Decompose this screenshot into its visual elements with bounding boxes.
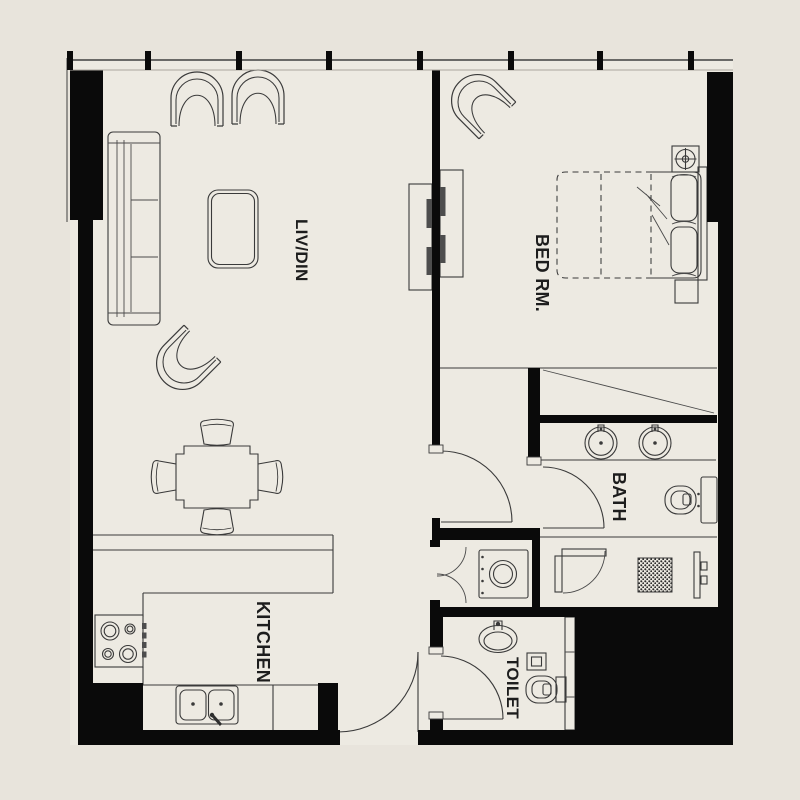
dining-table: [176, 446, 258, 508]
wall-right: [718, 222, 733, 737]
pillow: [671, 175, 697, 221]
wall-entry-block: [318, 683, 338, 745]
room-label-living-dining: LIV/DIN: [292, 219, 311, 282]
sofa: [108, 132, 160, 325]
wall-toilet-left-lower: [430, 718, 443, 730]
wall-corridor: [432, 528, 540, 540]
wall-kitchen-corner: [93, 683, 143, 730]
room-label-kitchen: KITCHEN: [253, 601, 273, 683]
dining-chair: [201, 509, 234, 535]
floor-drain: [638, 558, 672, 592]
pillow: [671, 227, 697, 273]
dining-chair: [201, 419, 234, 445]
wall-closet-right: [532, 540, 540, 607]
wall-living-bedroom-divider: [432, 70, 440, 448]
kitchen-sink: [176, 686, 238, 725]
wall-wardrobe-back: [540, 415, 717, 423]
stove-hob: [95, 615, 147, 667]
wall-right-pier: [707, 72, 733, 222]
room-label-bath: BATH: [609, 472, 629, 522]
room-label-toilet: TOILET: [503, 657, 522, 719]
wall-closet-toilet: [430, 607, 575, 617]
wall-se-mass: [575, 607, 733, 745]
dining-chair: [257, 461, 283, 494]
wall-bottom-left: [78, 730, 340, 745]
armchair: [171, 72, 223, 126]
room-label-bedroom: BED RM.: [532, 234, 552, 312]
floor-plan: LIV/DIN BED RM. KITCHEN BATH TOILET: [0, 0, 800, 800]
toilet-wc: [526, 676, 557, 703]
armchair: [232, 70, 284, 124]
floor-plan-drawing: LIV/DIN BED RM. KITCHEN BATH TOILET: [0, 0, 800, 800]
dining-chair: [151, 461, 177, 494]
wall-left: [78, 220, 93, 745]
wall-left-pier: [70, 70, 103, 220]
wall-bath-corridor: [528, 368, 540, 465]
